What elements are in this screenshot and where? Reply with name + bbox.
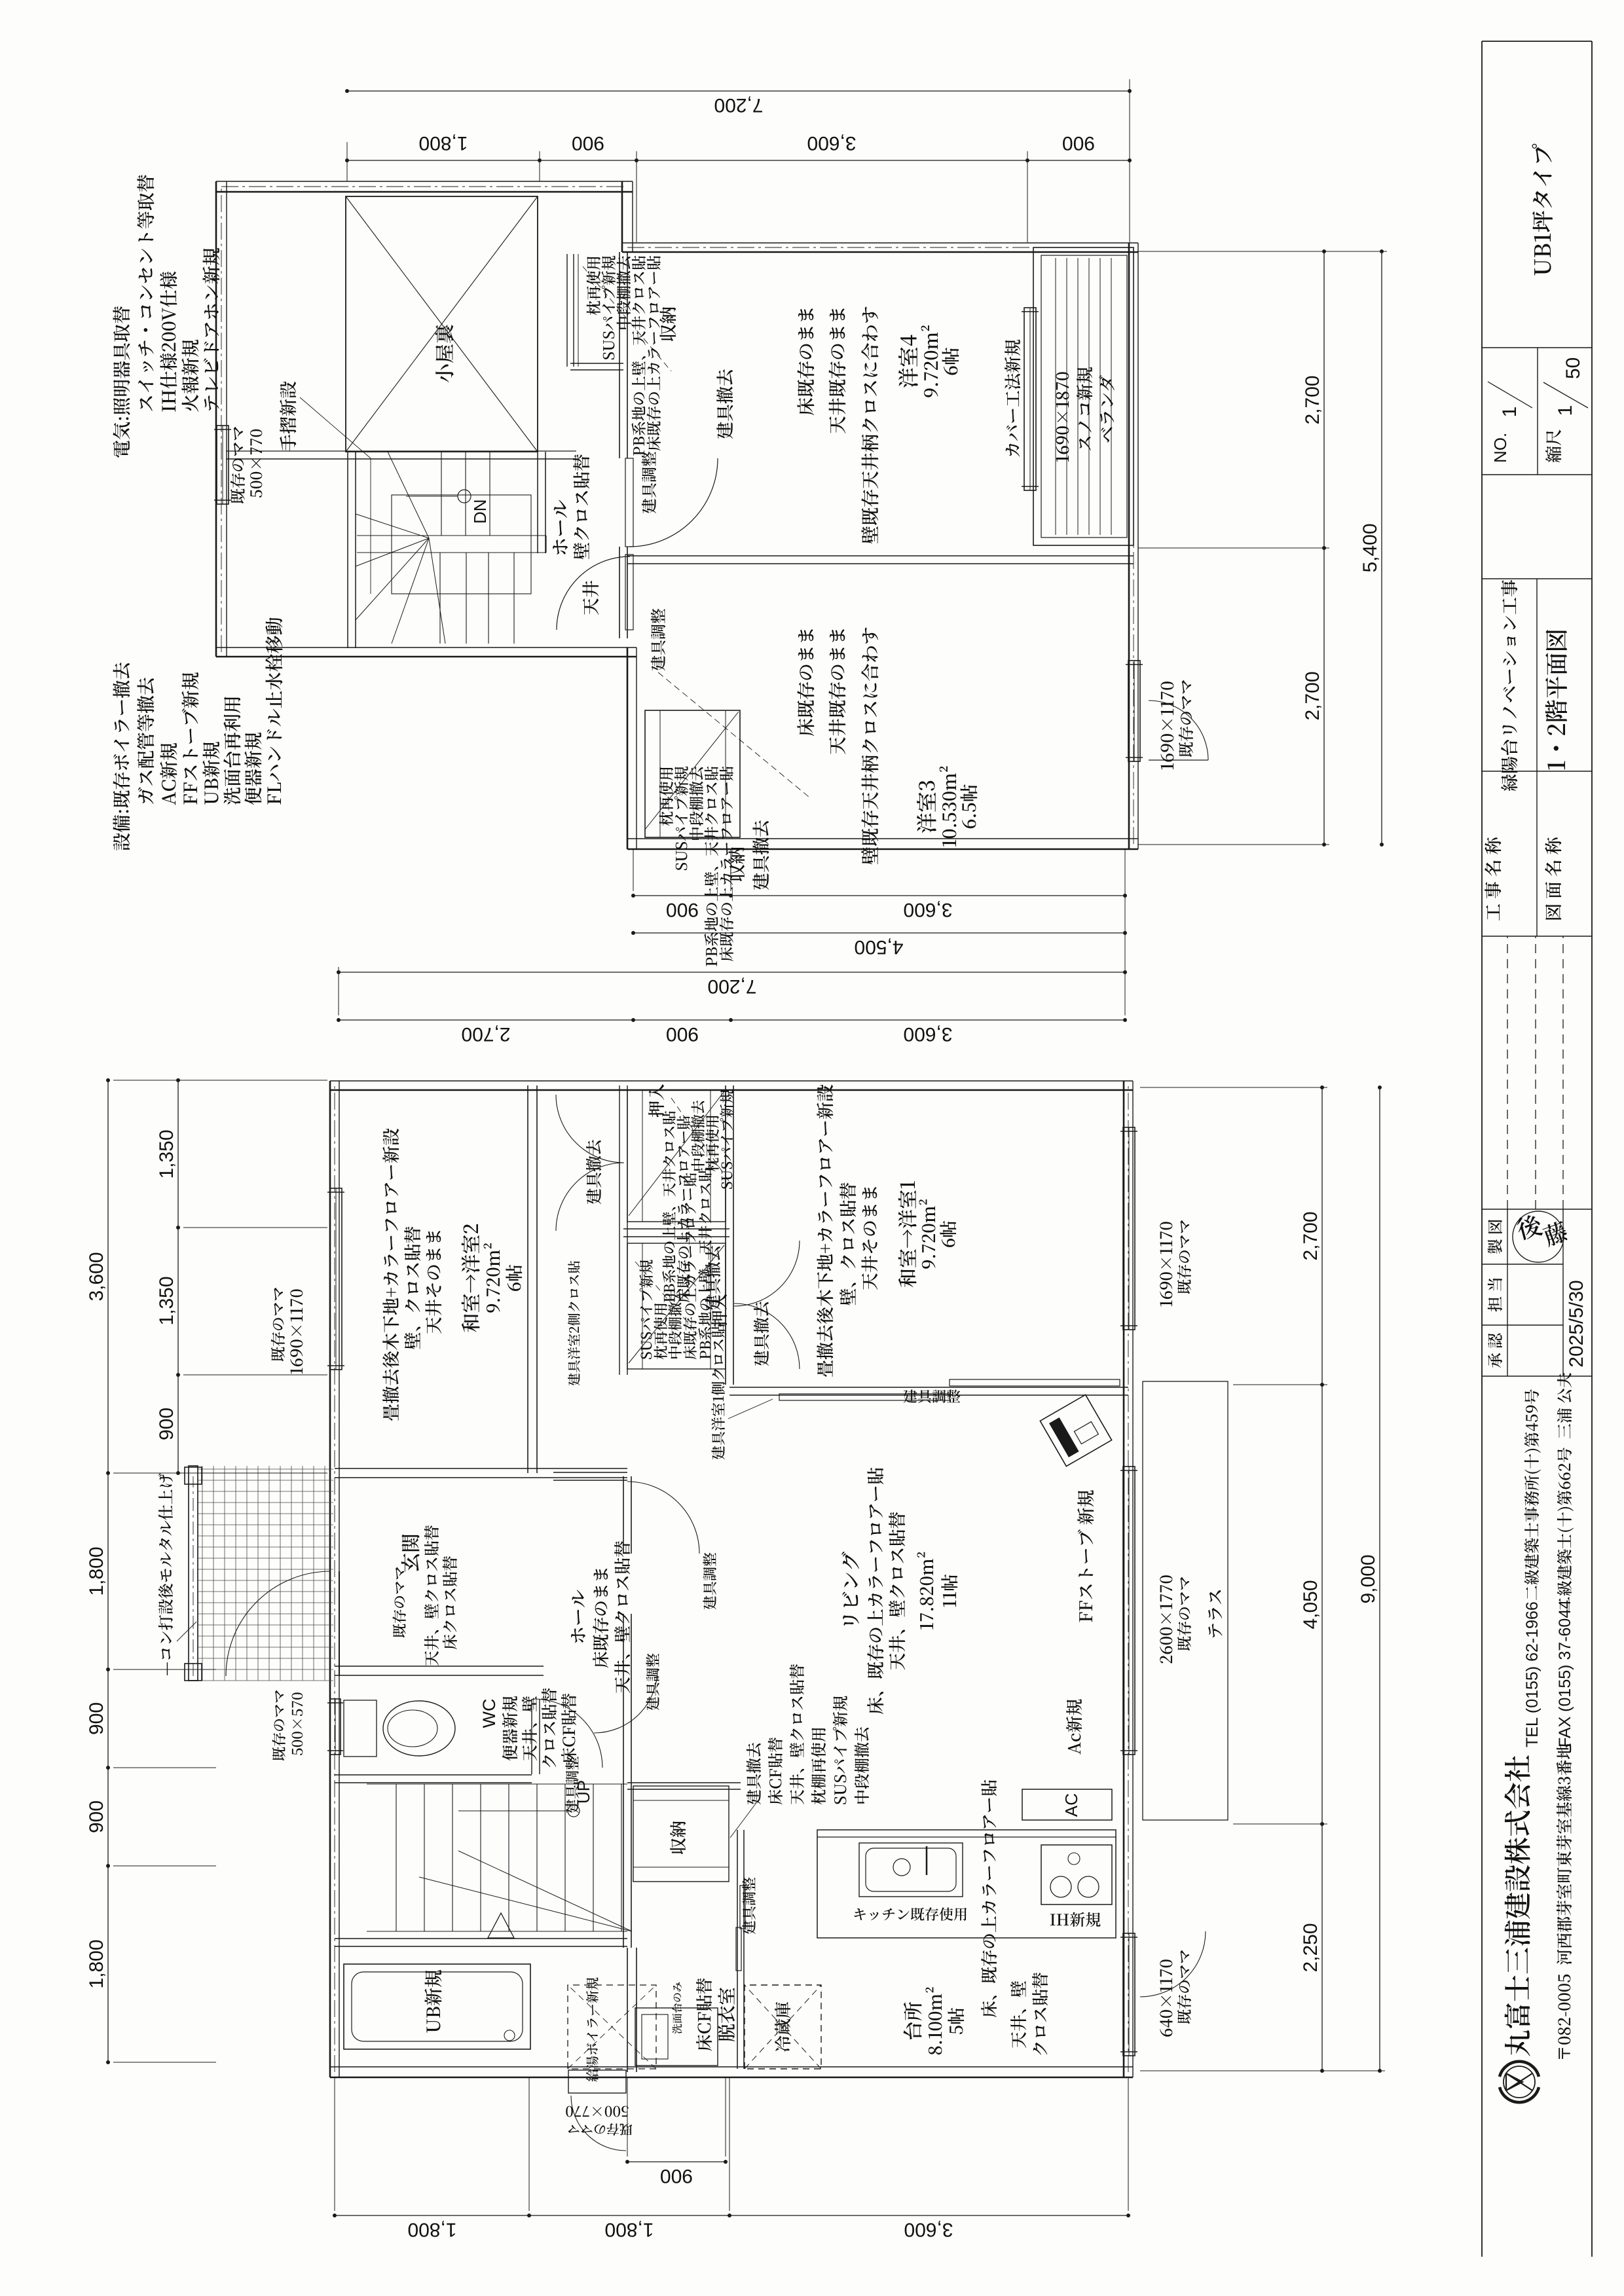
- svg-text:3,600: 3,600: [903, 899, 952, 920]
- svg-text:3,600: 3,600: [807, 132, 856, 154]
- svg-text:900: 900: [660, 2165, 693, 2187]
- svg-text:900: 900: [156, 1408, 177, 1440]
- svg-text:WC: WC: [479, 1699, 499, 1728]
- svg-text:TEL (0155) 62-1966: TEL (0155) 62-1966: [1523, 1601, 1541, 1747]
- svg-text:1,800: 1,800: [86, 1546, 107, 1595]
- svg-text:900: 900: [86, 1800, 107, 1833]
- svg-text:4,500: 4,500: [854, 936, 903, 958]
- svg-text:3,600: 3,600: [904, 2219, 953, 2240]
- svg-text:4,050: 4,050: [1300, 1580, 1321, 1629]
- svg-text:1,350: 1,350: [156, 1276, 177, 1325]
- svg-text:900: 900: [666, 1023, 699, 1045]
- svg-text:1,800: 1,800: [407, 2219, 456, 2240]
- svg-text:900: 900: [1062, 132, 1095, 154]
- svg-text:1: 1: [1499, 407, 1521, 418]
- svg-text:2,700: 2,700: [1300, 1211, 1321, 1260]
- svg-text:DN: DN: [470, 499, 490, 524]
- svg-text:UP: UP: [574, 1780, 593, 1804]
- svg-text:7,200: 7,200: [714, 94, 763, 116]
- svg-text:NO.: NO.: [1490, 433, 1510, 463]
- svg-text:9,000: 9,000: [1357, 1554, 1379, 1603]
- svg-text:1,800: 1,800: [86, 1939, 107, 1988]
- svg-text:1,800: 1,800: [604, 2219, 654, 2240]
- svg-text:FAX (0155) 37-6044: FAX (0155) 37-6044: [1556, 1600, 1574, 1747]
- svg-text:1: 1: [1555, 405, 1576, 416]
- svg-text:3,600: 3,600: [903, 1023, 952, 1045]
- svg-text:2025/5/30: 2025/5/30: [1566, 1280, 1587, 1367]
- svg-text:2,250: 2,250: [1300, 1923, 1321, 1972]
- svg-text:AC: AC: [1061, 1793, 1081, 1817]
- svg-text:5,400: 5,400: [1359, 523, 1381, 572]
- svg-text:900: 900: [86, 1702, 107, 1735]
- svg-text:1,800: 1,800: [418, 132, 468, 154]
- svg-text:50: 50: [1562, 357, 1584, 379]
- svg-text:7,200: 7,200: [707, 975, 756, 997]
- svg-text:2,700: 2,700: [1302, 671, 1323, 720]
- svg-text:2,700: 2,700: [461, 1023, 510, 1045]
- svg-text:3,600: 3,600: [86, 1252, 107, 1301]
- svg-text:1,350: 1,350: [156, 1129, 177, 1178]
- svg-text:2,700: 2,700: [1302, 375, 1323, 424]
- svg-text:900: 900: [572, 132, 604, 154]
- svg-text:900: 900: [666, 899, 699, 920]
